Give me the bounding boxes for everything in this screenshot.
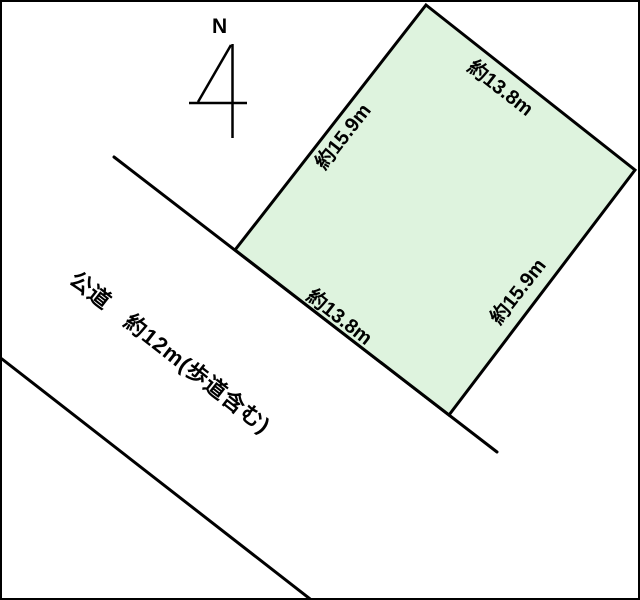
road-edge-lower-line (2, 359, 314, 600)
land-plot-polygon (235, 5, 635, 415)
north-label: N (212, 16, 227, 37)
site-plan-canvas: N 約13.8m 約15.9m 約13.8m 約15.9m 公道 約12m(歩道… (0, 0, 640, 600)
north-arrow-diagonal-line (198, 45, 231, 102)
